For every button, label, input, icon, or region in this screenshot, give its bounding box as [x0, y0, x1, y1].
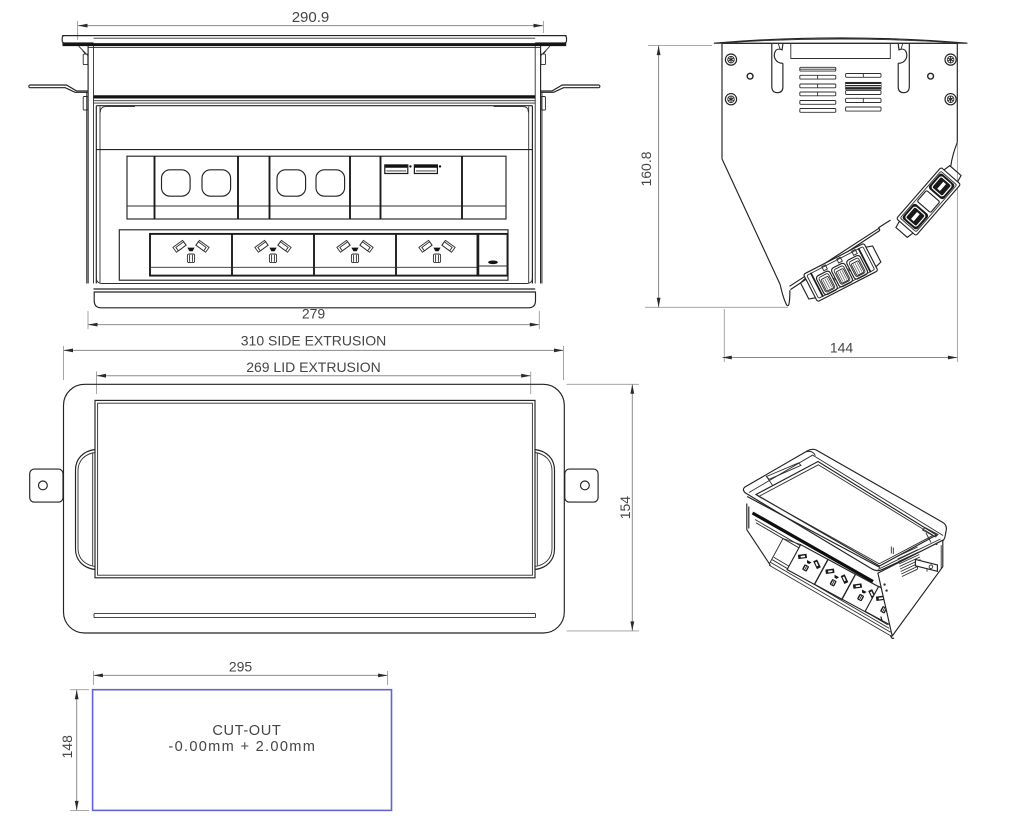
svg-text:290.9: 290.9	[292, 9, 330, 26]
svg-text:148: 148	[59, 735, 75, 759]
svg-text:CUT-OUT: CUT-OUT	[212, 723, 281, 739]
svg-text:295: 295	[229, 659, 253, 675]
svg-text:269 LID EXTRUSION: 269 LID EXTRUSION	[246, 359, 381, 375]
svg-text:279: 279	[302, 306, 326, 322]
svg-text:144: 144	[830, 339, 854, 355]
svg-text:310 SIDE EXTRUSION: 310 SIDE EXTRUSION	[241, 332, 387, 348]
svg-text:154: 154	[617, 496, 633, 520]
svg-text:-0.00mm + 2.00mm: -0.00mm + 2.00mm	[168, 739, 316, 755]
svg-text:160.8: 160.8	[638, 151, 654, 186]
